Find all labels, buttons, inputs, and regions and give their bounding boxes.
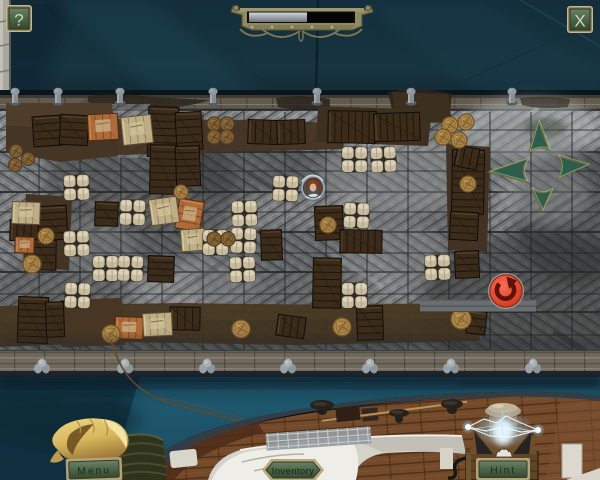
svg-text:Inventory: Inventory — [272, 466, 315, 477]
svg-text:Hint: Hint — [490, 465, 516, 477]
svg-text:Menu: Menu — [77, 464, 111, 477]
svg-text:X: X — [574, 12, 585, 31]
svg-text:?: ? — [14, 11, 23, 30]
